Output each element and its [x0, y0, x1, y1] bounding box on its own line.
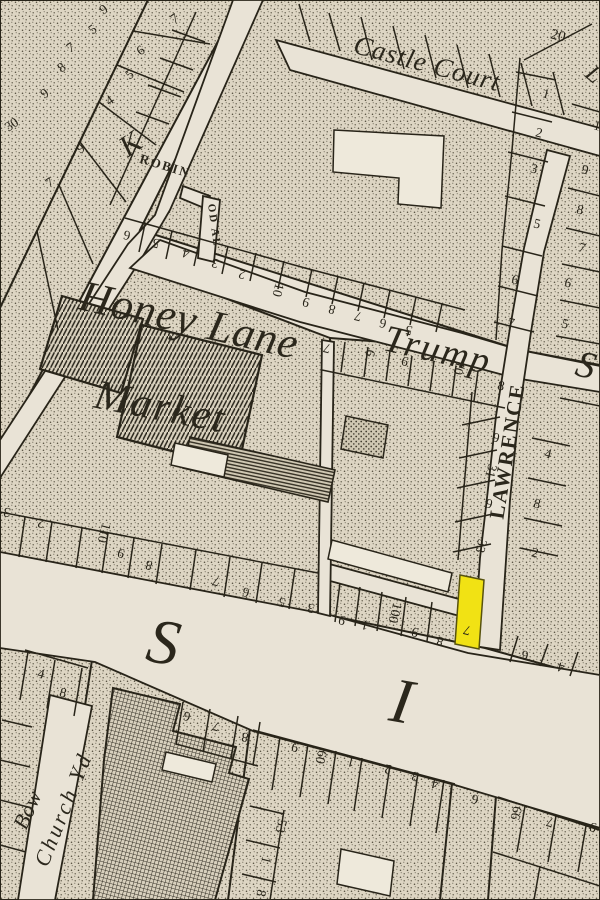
map-viewport: Castle CourtHoney LaneMarketTrumpSLAWREN… — [0, 0, 600, 900]
map-canvas[interactable]: Castle CourtHoney LaneMarketTrumpSLAWREN… — [0, 0, 600, 900]
